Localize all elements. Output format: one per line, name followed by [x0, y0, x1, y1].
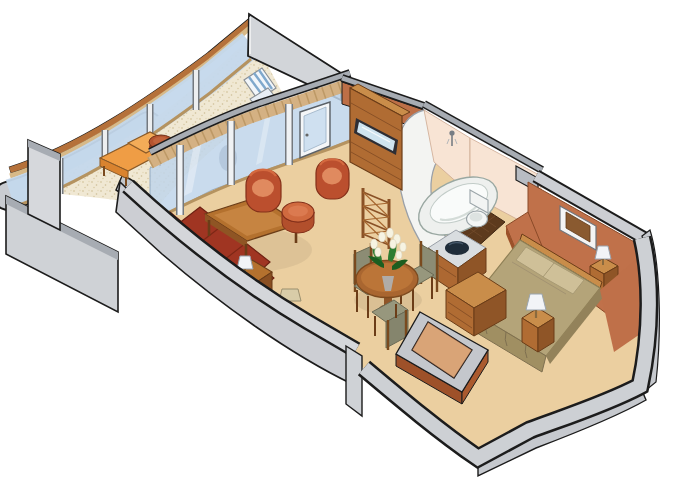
- door-handle: [305, 133, 308, 136]
- suite-floorplan-illustration: [0, 0, 680, 486]
- lamp-shade: [595, 246, 611, 259]
- chair-seat-cushion: [322, 168, 342, 185]
- toilet-seat: [470, 213, 483, 222]
- barrel-chair-2: [316, 159, 349, 199]
- ottoman-top-highlight: [288, 206, 308, 217]
- lamp-shade: [526, 294, 546, 310]
- ottoman: [282, 202, 314, 233]
- entry-wall-panel: [346, 346, 362, 416]
- floorplan-canvas: [0, 0, 680, 486]
- barrel-chair-1: [246, 170, 281, 212]
- chair-seat-cushion: [252, 179, 274, 197]
